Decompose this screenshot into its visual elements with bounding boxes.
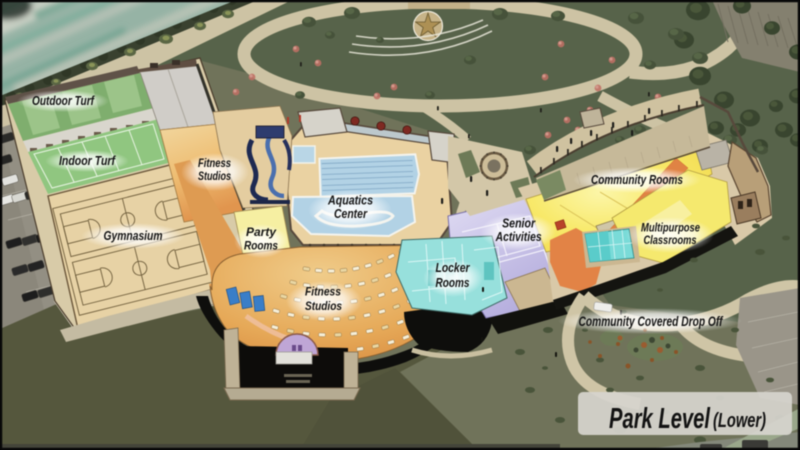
svg-text:Community Rooms: Community Rooms xyxy=(591,173,683,187)
svg-text:Studios: Studios xyxy=(198,171,231,183)
svg-text:Activities: Activities xyxy=(495,230,542,244)
svg-text:Rooms: Rooms xyxy=(244,241,278,253)
svg-text:Fitness: Fitness xyxy=(305,287,341,299)
svg-text:Fitness: Fitness xyxy=(198,158,231,170)
svg-text:Indoor Turf: Indoor Turf xyxy=(59,154,117,168)
svg-text:Outdoor Turf: Outdoor Turf xyxy=(32,94,95,108)
svg-text:Party: Party xyxy=(246,227,277,239)
svg-text:Rooms: Rooms xyxy=(436,276,470,290)
svg-text:(Lower): (Lower) xyxy=(713,410,766,432)
svg-text:Studios: Studios xyxy=(305,301,342,313)
svg-text:Park Level: Park Level xyxy=(609,403,711,435)
svg-text:Community Covered Drop Off: Community Covered Drop Off xyxy=(579,314,724,329)
svg-text:Classrooms: Classrooms xyxy=(644,233,697,247)
svg-text:Center: Center xyxy=(334,207,368,221)
svg-text:Gymnasium: Gymnasium xyxy=(104,228,163,243)
svg-text:Aquatics: Aquatics xyxy=(327,194,373,208)
svg-text:Senior: Senior xyxy=(502,217,536,231)
svg-text:Locker: Locker xyxy=(436,261,471,275)
